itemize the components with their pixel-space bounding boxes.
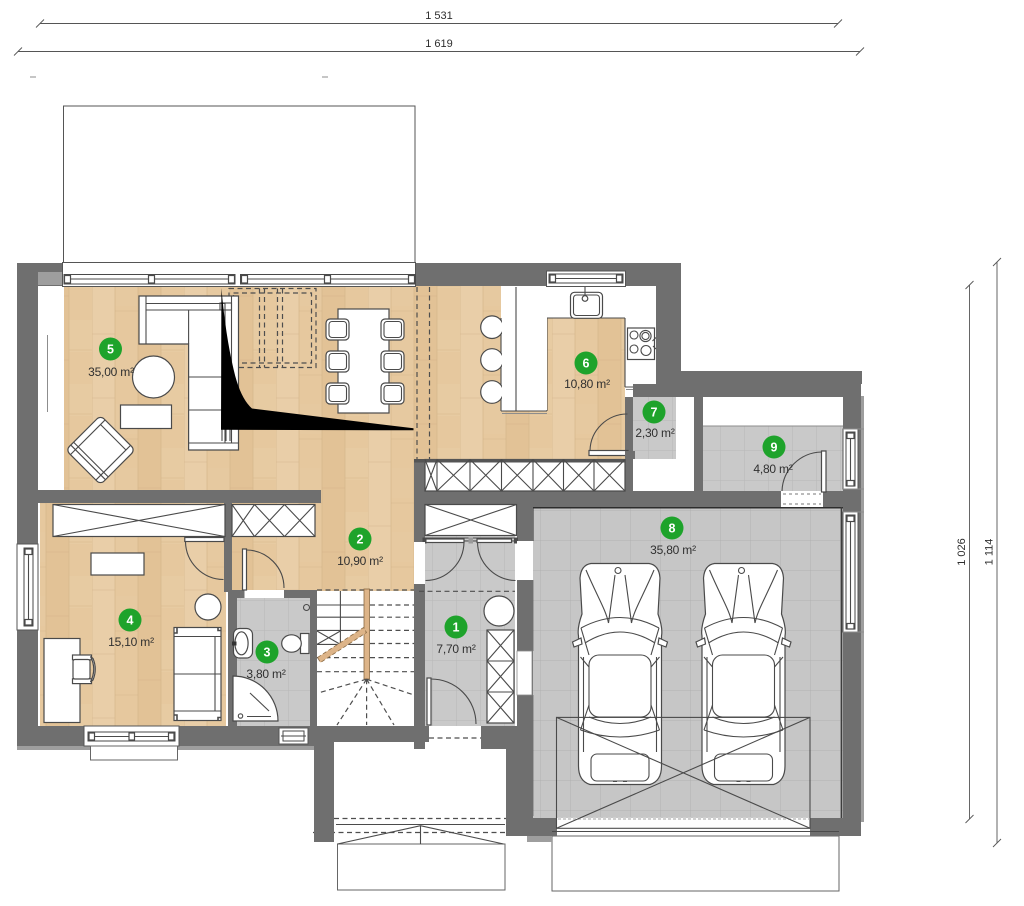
svg-text:1: 1 [453, 621, 460, 635]
svg-text:2,30 m²: 2,30 m² [635, 426, 674, 440]
svg-text:4: 4 [127, 614, 134, 628]
svg-text:3,80 m²: 3,80 m² [246, 667, 285, 681]
svg-text:7,70 m²: 7,70 m² [436, 642, 475, 656]
svg-text:9: 9 [771, 441, 778, 455]
svg-text:10,80 m²: 10,80 m² [564, 377, 610, 391]
svg-text:5: 5 [107, 343, 114, 357]
svg-text:35,00 m²: 35,00 m² [88, 365, 134, 379]
svg-text:7: 7 [651, 406, 658, 420]
svg-text:15,10 m²: 15,10 m² [108, 635, 154, 649]
svg-text:1 026: 1 026 [956, 538, 968, 566]
svg-text:4,80 m²: 4,80 m² [753, 462, 792, 476]
svg-text:6: 6 [583, 357, 590, 371]
svg-text:3: 3 [264, 646, 271, 660]
svg-text:1 531: 1 531 [425, 10, 453, 22]
svg-text:10,90 m²: 10,90 m² [337, 554, 383, 568]
svg-text:2: 2 [357, 533, 364, 547]
svg-text:8: 8 [669, 522, 676, 536]
svg-text:1 114: 1 114 [984, 539, 996, 566]
svg-text:35,80 m²: 35,80 m² [650, 543, 696, 557]
svg-text:1 619: 1 619 [425, 38, 453, 50]
